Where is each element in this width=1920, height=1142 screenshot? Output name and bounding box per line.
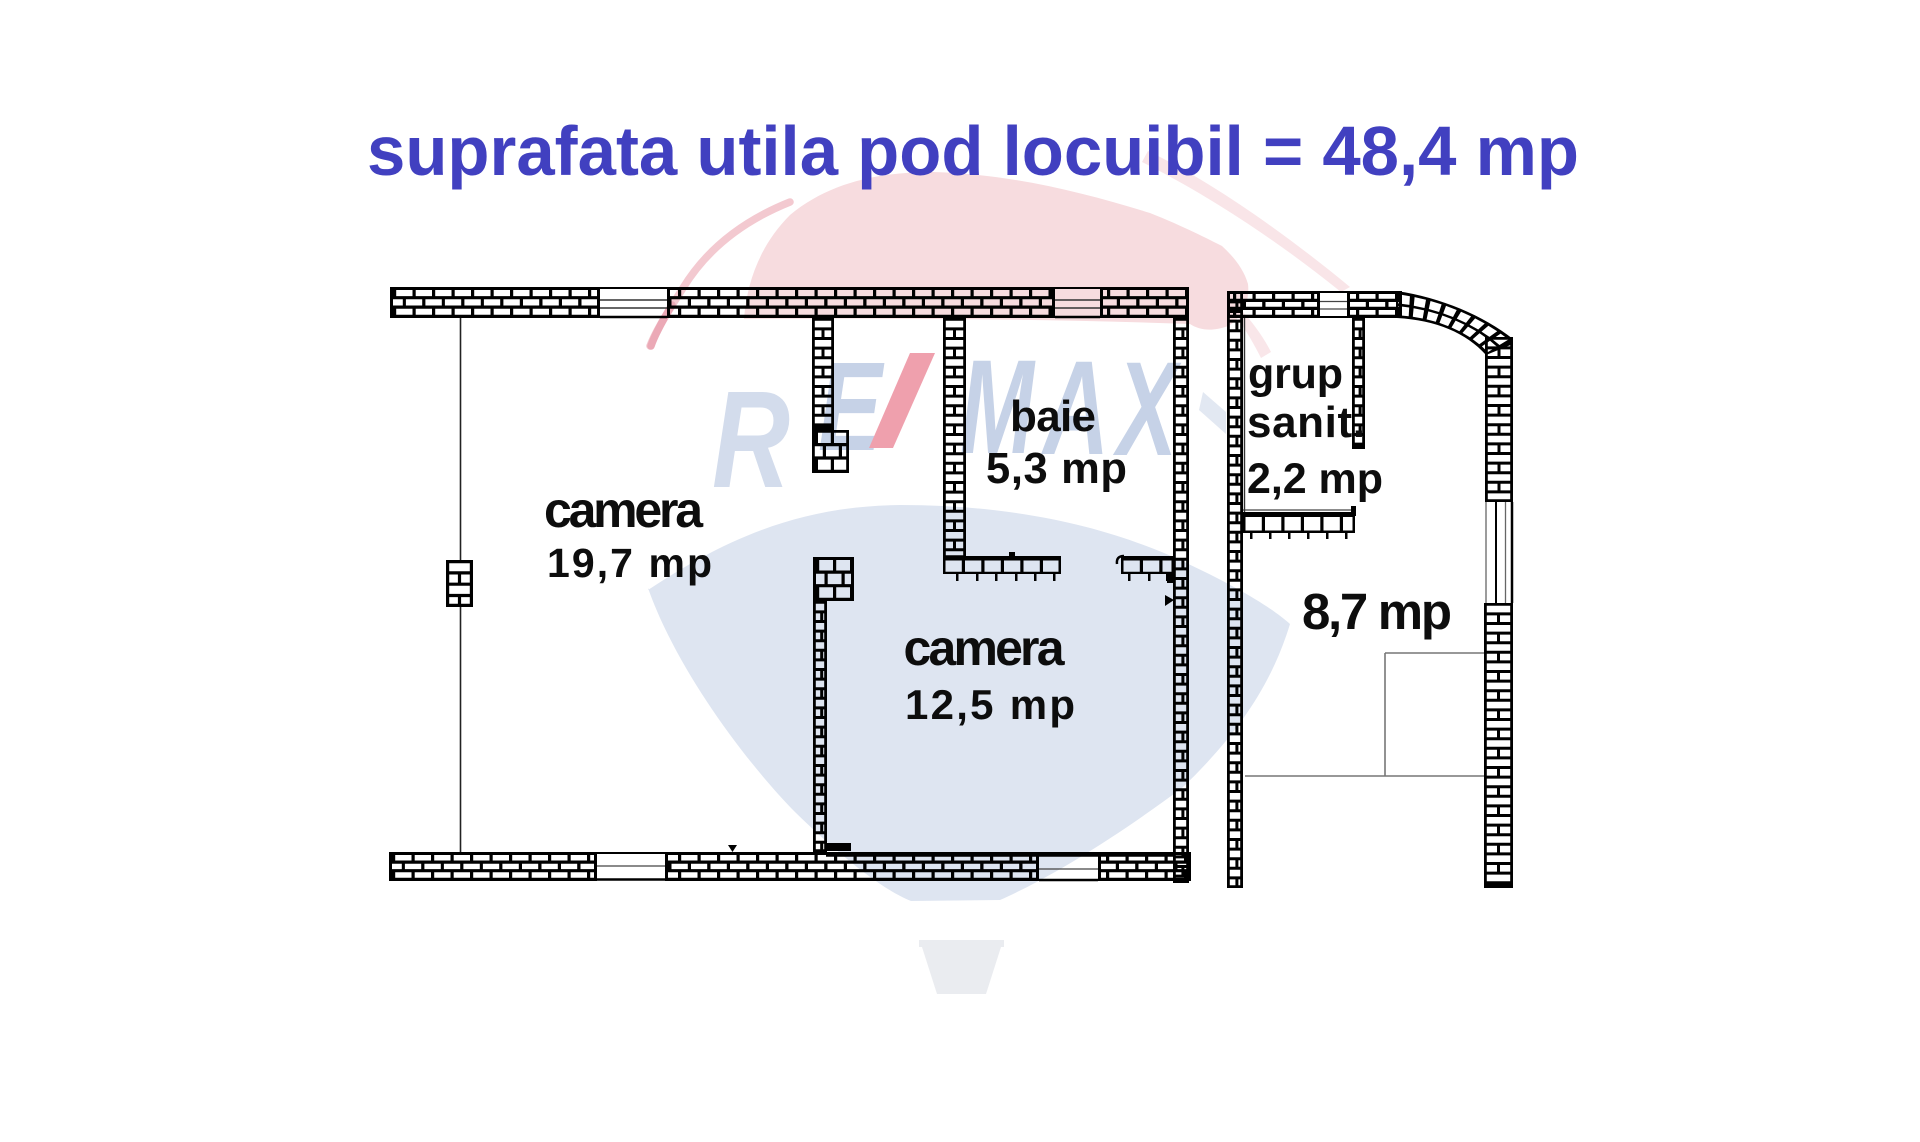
svg-text:5,3 mp: 5,3 mp — [986, 445, 1127, 493]
svg-text:R: R — [712, 363, 790, 517]
svg-text:sanit.: sanit. — [1247, 398, 1365, 447]
svg-text:12,5 mp: 12,5 mp — [905, 681, 1075, 728]
svg-text:2,2 mp: 2,2 mp — [1247, 455, 1383, 503]
svg-text:baie: baie — [1010, 392, 1096, 441]
svg-text:suprafata utila pod locuibil =: suprafata utila pod locuibil = 48,4 mp — [367, 112, 1579, 190]
svg-text:camera: camera — [904, 620, 1066, 676]
svg-text:8,7 mp: 8,7 mp — [1302, 583, 1452, 640]
svg-text:camera: camera — [544, 482, 704, 538]
svg-text:19,7 mp: 19,7 mp — [547, 540, 712, 586]
svg-text:grup: grup — [1248, 350, 1343, 398]
